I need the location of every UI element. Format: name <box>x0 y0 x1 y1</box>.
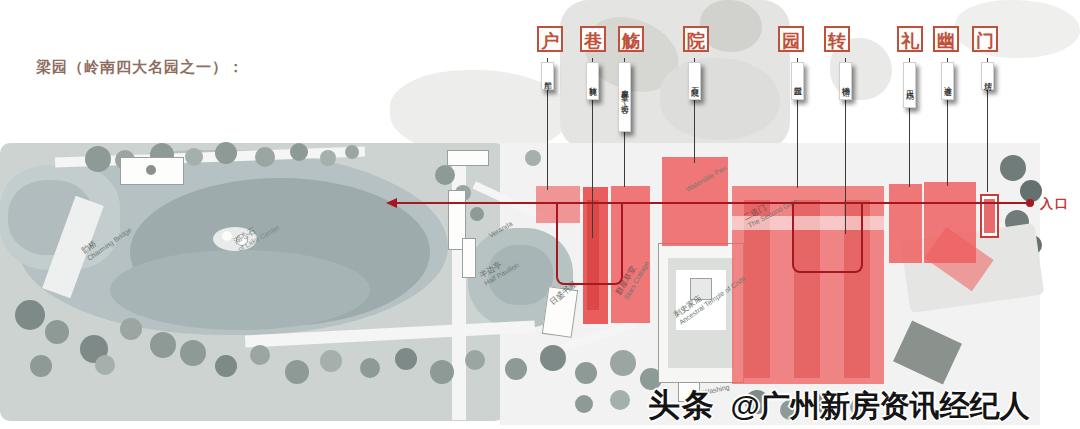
article-image: 梁园（岭南四大名园之一）： <box>0 0 1080 429</box>
tour-concept-yuan-court: 院 <box>683 26 709 52</box>
route-arrowhead <box>386 198 397 208</box>
watermark-brand: 头条 <box>648 387 716 423</box>
tour-spot-museum: 博物馆 <box>839 62 852 100</box>
page-title: 梁园（岭南四大名园之一）： <box>36 58 244 77</box>
tour-concept-li: 礼 <box>897 26 923 52</box>
tour-spot-qiushuang: 秋爽轩 <box>586 62 599 100</box>
tour-spot-boat-hall: 船厅 <box>541 62 554 90</box>
tour-concept-xiang: 巷 <box>580 26 606 52</box>
tour-concept-men: 门 <box>972 26 998 52</box>
tour-concept-shang: 觞 <box>618 26 644 52</box>
tour-spot-entrance-plaza: 入口广场 <box>903 62 916 108</box>
tour-spot-stone-court: 石庭院 <box>688 62 701 100</box>
entrance-label: 入口 <box>1040 195 1070 213</box>
route-start-dot <box>1026 199 1034 207</box>
tour-spot-stars-cottage: 群星草堂(待客) <box>618 62 631 132</box>
tour-spot-bonsai-garden: 盆景园 <box>791 62 804 100</box>
watermark: 头条 @广州新房资讯经纪人 <box>648 384 1030 428</box>
tour-concept-you: 幽 <box>933 26 959 52</box>
tour-concept-zhuan: 转 <box>824 26 850 52</box>
highlight-entry-court-west <box>889 184 922 263</box>
tour-concept-hu: 户 <box>537 26 563 52</box>
tour-spot-paifang: 牌坊 <box>981 62 994 90</box>
tour-spot-cool-lane: 冷巷道 <box>941 62 954 100</box>
tour-concept-yuan-garden: 园 <box>778 26 804 52</box>
watermark-handle: @广州新房资讯经纪人 <box>730 389 1029 422</box>
